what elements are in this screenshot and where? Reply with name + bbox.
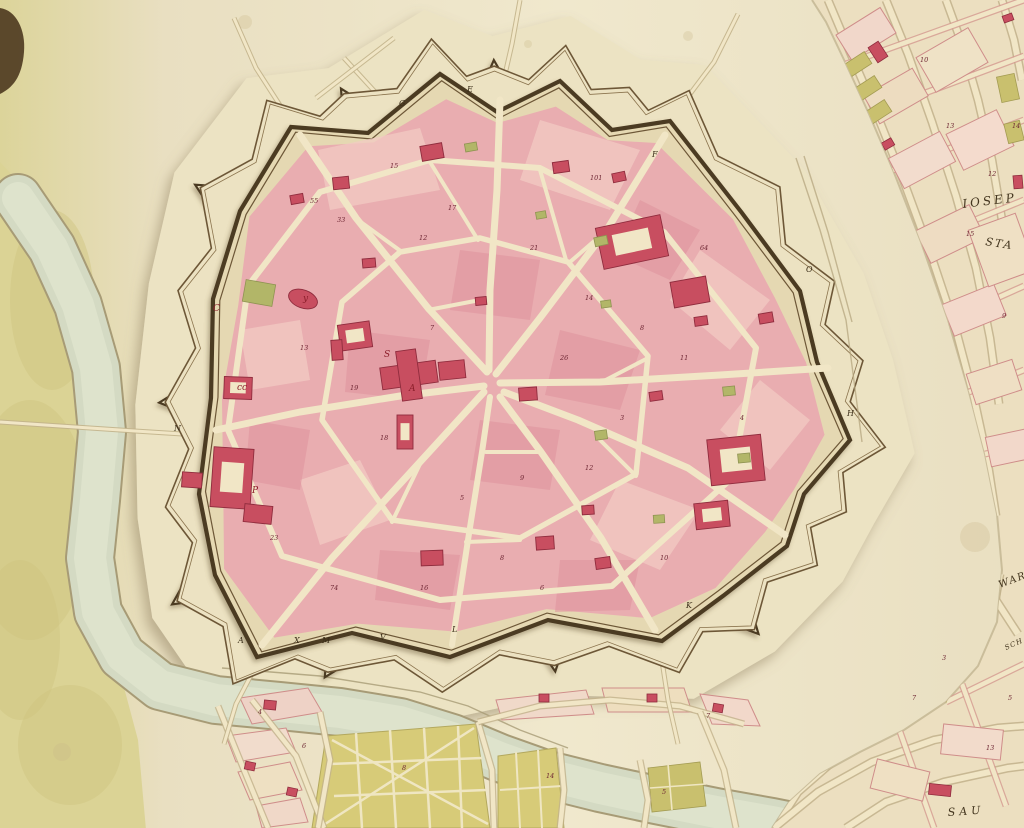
green-courtyard (594, 430, 607, 441)
bastion-letter-G: G (399, 99, 406, 108)
red-building (519, 387, 538, 401)
block-number: 10 (920, 56, 928, 64)
paper-stain (238, 15, 252, 29)
block-number: 12 (419, 234, 427, 242)
red-building (758, 312, 774, 324)
block-number: 8 (500, 554, 504, 562)
red-building (670, 276, 710, 308)
block-number: 74 (330, 584, 338, 592)
green-courtyard (464, 142, 477, 152)
bastion-letter-N: N (173, 424, 182, 433)
red-building (595, 557, 611, 570)
suburb-red-building (264, 700, 277, 710)
block-number: 13 (946, 122, 954, 130)
block-number: 5 (460, 494, 464, 502)
block-number: 6 (540, 584, 544, 592)
suburb-red-building (647, 694, 657, 702)
suburb-block (941, 724, 1004, 760)
place-label-sau: SAU (947, 803, 985, 819)
city-block-dark (245, 420, 310, 490)
block-number: 23 (269, 534, 278, 542)
block-number: 14 (1012, 122, 1020, 130)
bastion-letter-E: E (466, 85, 473, 94)
red-building (331, 340, 343, 361)
block-number: 4 (739, 414, 744, 422)
block-number: 14 (546, 772, 554, 780)
city-letter-S: S (384, 350, 390, 360)
building-courtyard (702, 507, 722, 522)
bastion-letter-K: K (685, 601, 693, 610)
red-building (243, 504, 273, 525)
paper-stain (53, 743, 71, 761)
block-number: 5 (662, 788, 666, 796)
red-building (475, 297, 487, 306)
bastion-letter-L: L (451, 625, 457, 634)
green-courtyard (535, 211, 546, 220)
red-building (438, 360, 466, 381)
historical-fortification-map: IOSEP HSTAWARISCHSAUGEFOHKLVMXANySAccCP1… (0, 0, 1024, 828)
block-number: 26 (559, 354, 568, 362)
suburb-red-building (539, 694, 549, 702)
bastion-letter-O: O (806, 265, 813, 274)
green-courtyard (723, 386, 736, 396)
block-number: 101 (590, 174, 602, 182)
city-letter-cc: cc (237, 383, 247, 393)
red-building (582, 505, 595, 515)
building-courtyard (220, 462, 244, 493)
map-svg: IOSEP HSTAWARISCHSAUGEFOHKLVMXANySAccCP1… (0, 0, 1024, 828)
block-number: 10 (660, 554, 668, 562)
suburb-red-building (712, 703, 723, 713)
city-letter-P: P (251, 486, 259, 496)
block-number: 6 (302, 742, 306, 750)
block-number: 18 (380, 434, 388, 442)
city-letter-A: A (408, 384, 416, 394)
block-number: 8 (402, 764, 406, 772)
block-number: 15 (966, 230, 974, 238)
red-building (421, 550, 444, 566)
red-building (420, 143, 444, 162)
red-building (536, 536, 555, 550)
green-courtyard (653, 515, 665, 524)
green-courtyard (242, 280, 275, 307)
suburb-red-building (244, 761, 255, 771)
building-courtyard (401, 423, 410, 440)
suburb-red-building (286, 787, 297, 797)
paper-stain (524, 40, 532, 48)
paper-stain (683, 31, 693, 41)
green-courtyard (601, 300, 612, 308)
paper-stain (960, 522, 990, 552)
red-building (552, 160, 569, 173)
block-number: 11 (680, 354, 688, 362)
red-building (182, 472, 203, 488)
block-number: 9 (1002, 312, 1006, 320)
block-number: 55 (310, 197, 318, 205)
block-number: 4 (257, 708, 262, 716)
block-number: 17 (448, 204, 457, 212)
city-letter-C: C (213, 304, 220, 314)
block-number: 3 (942, 654, 946, 662)
block-number: 33 (337, 216, 345, 224)
city-letter-y: y (302, 294, 309, 304)
bastion-letter-M: M (321, 636, 331, 645)
block-number: 12 (988, 170, 996, 178)
block-number: 3 (620, 414, 624, 422)
red-building (332, 176, 349, 190)
block-number: 19 (350, 384, 358, 392)
bastion-letter-H: H (846, 409, 855, 418)
block-number: 13 (986, 744, 994, 752)
block-number: 16 (420, 584, 428, 592)
block-number: 12 (585, 464, 593, 472)
building-courtyard (345, 328, 365, 343)
block-number: 13 (300, 344, 308, 352)
bastion-letter-F: F (651, 150, 658, 159)
bastion-letter-X: X (293, 636, 300, 645)
block-number: 5 (1008, 694, 1012, 702)
bastion-letter-A: A (237, 636, 244, 645)
block-number: 21 (529, 244, 538, 252)
suburb-red-building (1013, 175, 1023, 189)
city-street (466, 540, 520, 542)
red-building (694, 316, 708, 327)
block-number: 14 (585, 294, 593, 302)
red-building (290, 193, 304, 204)
red-building (649, 391, 663, 402)
red-building (362, 258, 376, 268)
block-number: 15 (390, 162, 398, 170)
block-number: 64 (700, 244, 708, 252)
suburb-red-building (928, 783, 951, 796)
block-number: 8 (640, 324, 644, 332)
green-courtyard (738, 453, 751, 463)
block-number: 9 (520, 474, 524, 482)
